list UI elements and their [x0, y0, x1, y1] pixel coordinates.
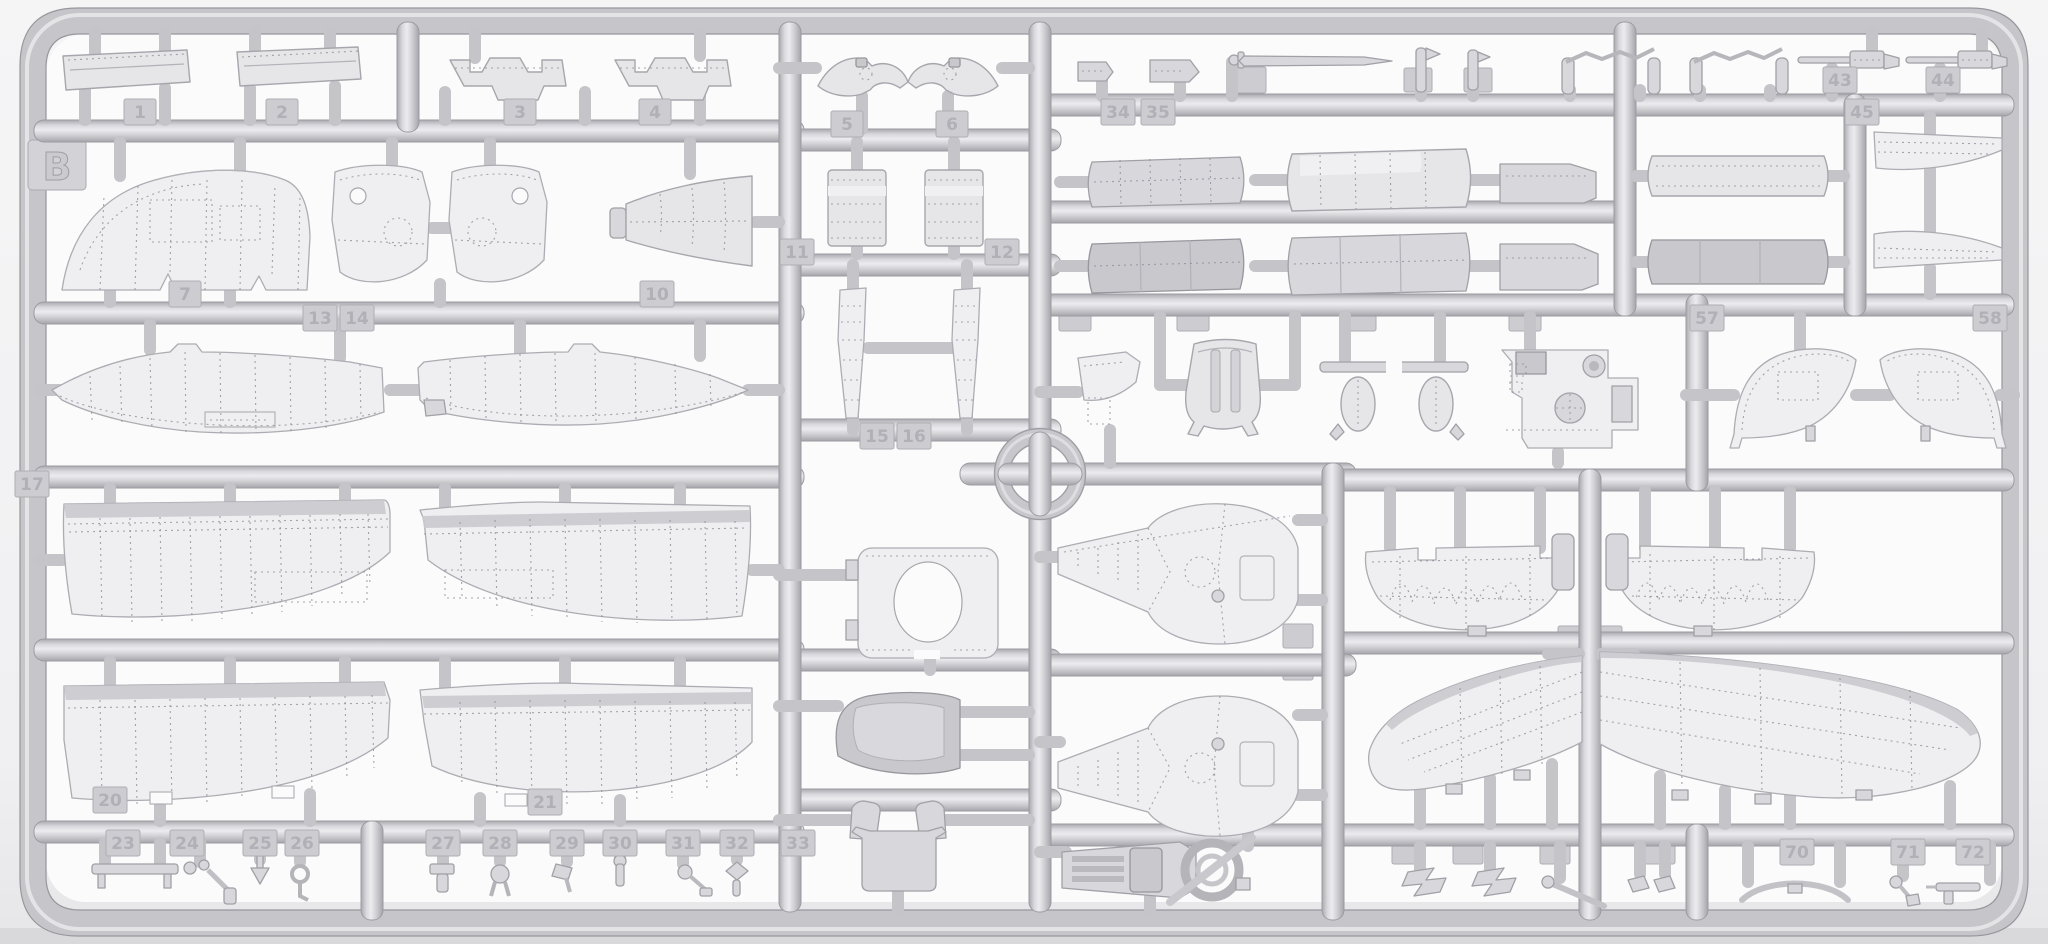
part-cowl-eyebrow-b	[1648, 240, 1828, 284]
tag-32: 32	[725, 834, 749, 854]
tag-43: 43	[1828, 71, 1852, 91]
part-cowl-band-upper-b	[1288, 149, 1471, 211]
tag-71: 71	[1896, 843, 1920, 863]
tag-13: 13	[308, 309, 332, 329]
part-cowl-band-lower-a	[1088, 239, 1244, 293]
tag-7: 7	[179, 285, 191, 305]
tag-12: 12	[990, 243, 1014, 263]
tag-20: 20	[98, 791, 122, 811]
tag-4: 4	[649, 103, 661, 123]
part-side-plate-right	[1606, 534, 1628, 590]
tag-45: 45	[1850, 103, 1874, 123]
tag-31: 31	[671, 834, 695, 854]
tag-24: 24	[175, 834, 199, 854]
sprue-letter-tab: B	[28, 140, 86, 190]
tag-5: 5	[841, 115, 853, 135]
tag-70: 70	[1785, 843, 1809, 863]
sprue-photo: B	[0, 0, 2048, 944]
tag-72: 72	[1961, 843, 1985, 863]
tag-30: 30	[608, 834, 632, 854]
tag-57: 57	[1695, 309, 1719, 329]
tag-14: 14	[345, 309, 369, 329]
part-side-plate-left	[1552, 534, 1574, 590]
part-small-pin-30	[614, 855, 626, 886]
tag-35: 35	[1146, 103, 1170, 123]
tag-23: 23	[111, 834, 135, 854]
tag-27: 27	[431, 834, 455, 854]
part-wing-spar-2	[237, 47, 361, 86]
tag-1: 1	[134, 103, 146, 123]
tag-6: 6	[946, 115, 958, 135]
part-firewall-plate-8	[332, 165, 430, 282]
tag-10: 10	[645, 285, 669, 305]
tag-11: 11	[785, 243, 809, 263]
tag-17: 17	[20, 475, 44, 495]
part-firewall-plate-9	[449, 165, 547, 282]
tag-21: 21	[533, 793, 557, 813]
part-clip-35	[1150, 60, 1199, 82]
tag-58: 58	[1978, 309, 2002, 329]
part-cowl-eyebrow-a	[1648, 156, 1828, 196]
tag-15: 15	[865, 427, 889, 447]
tag-34: 34	[1106, 103, 1130, 123]
part-cowl-band-lower-b	[1288, 233, 1470, 295]
tag-44: 44	[1931, 71, 1955, 91]
part-cowl-corner-upper	[1500, 164, 1596, 203]
tag-2: 2	[276, 103, 288, 123]
part-drum-panel-12	[925, 170, 983, 246]
part-cowl-corner-lower	[1500, 244, 1598, 290]
tag-16: 16	[902, 427, 926, 447]
part-cowl-band-upper-a	[1088, 157, 1244, 207]
tag-29: 29	[555, 834, 579, 854]
sprue-letter: B	[43, 145, 72, 189]
tag-25: 25	[248, 834, 272, 854]
part-pilot-seat	[1186, 340, 1261, 437]
part-clip-34	[1078, 62, 1113, 81]
tag-33: 33	[786, 834, 810, 854]
tag-26: 26	[290, 834, 314, 854]
part-drum-panel-11	[828, 170, 886, 246]
part-canopy-fairing	[836, 693, 960, 774]
tag-28: 28	[488, 834, 512, 854]
registration-mark-icon	[995, 429, 1086, 520]
tag-3: 3	[514, 103, 526, 123]
part-frame-with-opening	[846, 548, 998, 659]
